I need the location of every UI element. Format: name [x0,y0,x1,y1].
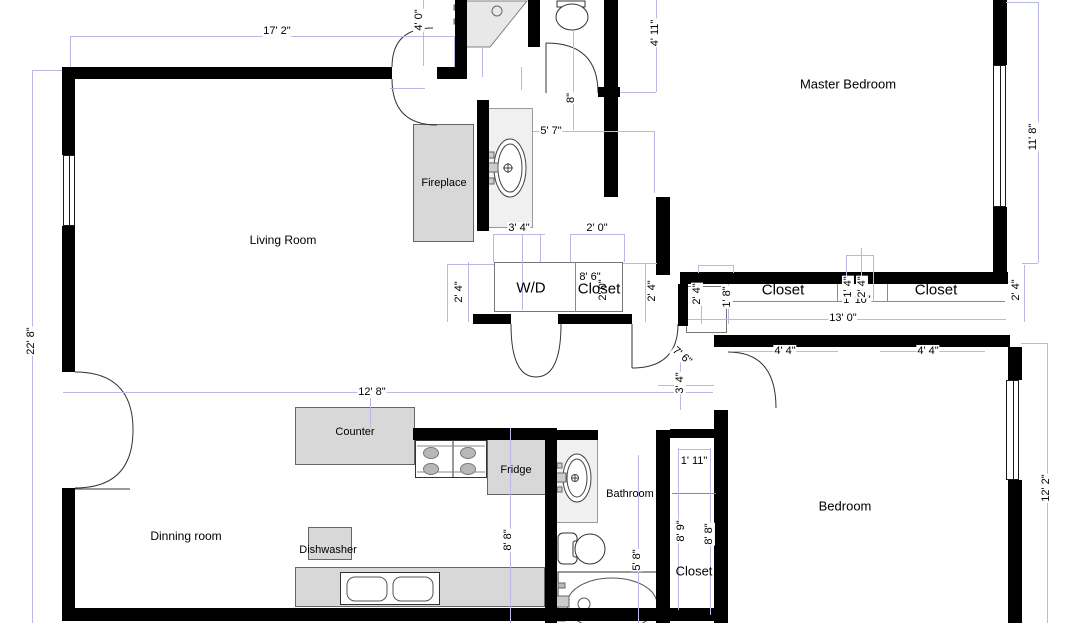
wall-segment-27 [1008,480,1022,623]
window-1 [993,65,1006,207]
wall-segment-25 [993,207,1007,284]
door-wd-right-arc [536,324,561,377]
wall-segment-12 [558,314,632,324]
window-0 [63,155,75,226]
dimension-line-28 [698,265,733,266]
dimension-line-9 [1022,263,1038,264]
dimension-line-20 [570,234,625,235]
wall-segment-16 [62,226,75,372]
dimension-label: 11' 8" [1027,123,1039,152]
dimension-label: 4' 11" [649,19,661,48]
closet-hall-label: Closet [676,564,713,579]
dimension-line-4 [390,88,425,89]
bathroom-vanity [555,438,598,523]
wall-segment-23 [670,429,716,438]
toilet-top-tank [557,1,585,7]
dimension-line-16 [573,30,574,130]
dimension-label: 3' 4" [507,222,530,234]
toilet-seat [573,541,580,557]
dimension-label: 4' 4" [916,345,939,357]
dimension-label: 7' 6" [669,344,695,368]
toilet-tank [558,533,577,564]
dimension-label: 8' 8" [502,528,514,551]
wall-segment-8 [656,197,670,275]
dimension-label: 2' 4" [453,280,465,303]
fireplace-label: Fireplace [421,177,466,189]
dimension-line-49 [1024,265,1025,322]
dimension-line-35 [873,255,874,302]
hall-vanity [486,108,533,228]
dimension-label: 8' 8" [703,522,715,545]
dimension-line-17 [493,234,545,235]
dimension-label: 8' 9" [675,519,687,542]
wall-segment-24 [993,0,1007,65]
wall-segment-11 [473,314,511,324]
dimension-line-23 [447,264,494,265]
dimension-line-6 [620,92,656,93]
dimension-line-22 [624,234,625,262]
floor-plan: 17' 2"4' 0"4' 11"11' 8"22' 8"5' 7"8"3' 4… [0,0,1072,623]
closet-master-2-label: Closet [915,282,958,299]
dimension-label: 2' 4" [856,275,868,298]
door-french-bottom-arc [75,430,133,488]
dimension-label: 2' 4" [691,282,703,305]
closet-wd-label: Closet [578,281,621,298]
dimension-line-51 [521,67,522,90]
dimension-label: 5' 7" [539,125,562,137]
dimension-line-8 [1006,2,1038,3]
dimension-label: 8" [565,92,577,104]
toilet-bowl [575,534,605,564]
dimension-line-1 [70,36,71,67]
dimension-line-48 [510,428,511,623]
wall-segment-17 [62,488,75,613]
wall-segment-5 [604,0,618,87]
dimension-line-40 [63,392,713,393]
stove [415,440,487,478]
wall-segment-19 [413,428,557,440]
door-hall-arc [632,324,678,368]
dimension-line-21 [570,234,571,262]
wall-segment-7 [604,97,618,197]
window-2 [1006,380,1019,480]
wall-segment-20 [545,440,557,623]
wall-segment-21 [553,430,598,440]
dimension-label: 2' 4" [646,279,658,302]
dimension-label: 1' 8" [721,285,733,308]
door-french-top-arc [75,372,133,430]
dimension-line-27 [623,263,657,264]
dimension-label: 4' 4" [773,345,796,357]
dimension-label: 1' 4" [842,275,854,298]
master-bedroom-label: Master Bedroom [800,77,896,92]
dining-room-label: Dinning room [150,529,221,543]
door-entry-arc [546,43,598,93]
dimension-label: 2' 0" [585,222,608,234]
wall-segment-6 [598,87,620,97]
door-wd-left-arc [511,324,536,377]
door-entry-upper-arc [392,28,433,67]
dimension-label: 12' 2" [1040,473,1052,502]
bathtub-spout [556,596,569,607]
wall-segment-10 [678,284,688,326]
kitchen-sink [340,572,440,605]
door-bedroom-arc [728,352,776,408]
dimension-line-18 [493,234,494,262]
dimension-line-2 [454,36,455,67]
shower-drain [492,6,502,16]
wall-segment-15 [62,67,75,155]
dimension-label: 2' 4" [1010,278,1022,301]
dimension-line-24 [447,264,448,322]
door-living-entry-arc [392,79,437,125]
wall-segment-3 [477,100,489,231]
dimension-line-47 [638,455,639,623]
dimension-label: 12' 8" [357,386,386,398]
dimension-line-11 [32,70,62,71]
closet-edge-line-2 [887,284,888,302]
dimension-label: 3' 4" [674,371,686,394]
wall-segment-2 [455,0,467,79]
dimension-line-50 [482,47,483,77]
dimension-line-15 [654,131,655,193]
wall-segment-13 [714,335,1010,347]
fridge-label: Fridge [500,464,531,476]
bathroom-label: Bathroom [606,488,654,500]
dimension-line-46 [678,449,710,450]
wall-segment-26 [1008,347,1022,380]
dimension-label: 1' 11" [680,455,709,467]
corner-shower [463,1,527,47]
dimension-label: 17' 2" [262,25,291,37]
dimension-line-36 [846,255,873,256]
closet-edge-line-1 [837,284,838,302]
wall-segment-4 [528,0,540,47]
dimension-label: 5' 8" [631,548,643,571]
dimension-line-30 [733,265,734,273]
dimension-line-29 [698,265,699,273]
dimension-label: 4' 0" [413,8,425,31]
bathtub [558,572,663,610]
living-room-label: Living Room [250,233,317,247]
bathtub-handle [558,583,565,588]
washer-dryer-label: W/D [516,280,545,297]
wall-segment-22 [656,430,670,623]
wall-segment-0 [68,67,392,79]
dimension-line-13 [1021,343,1047,344]
closet-master-1-label: Closet [762,282,805,299]
wall-segment-18 [62,608,728,621]
dimension-line-19 [540,234,541,262]
dimension-label: 13' 0" [828,312,857,324]
counter-label: Counter [335,426,374,438]
bedroom-label: Bedroom [819,499,872,514]
dishwasher-label: Dishwasher [299,544,356,556]
dimension-label: 22' 8" [25,326,37,355]
dimension-line-25 [468,262,469,322]
wall-segment-14 [714,410,728,623]
toilet-top-bowl [556,4,588,30]
closet-edge-line-4 [575,262,576,312]
dimension-line-52 [522,234,523,310]
